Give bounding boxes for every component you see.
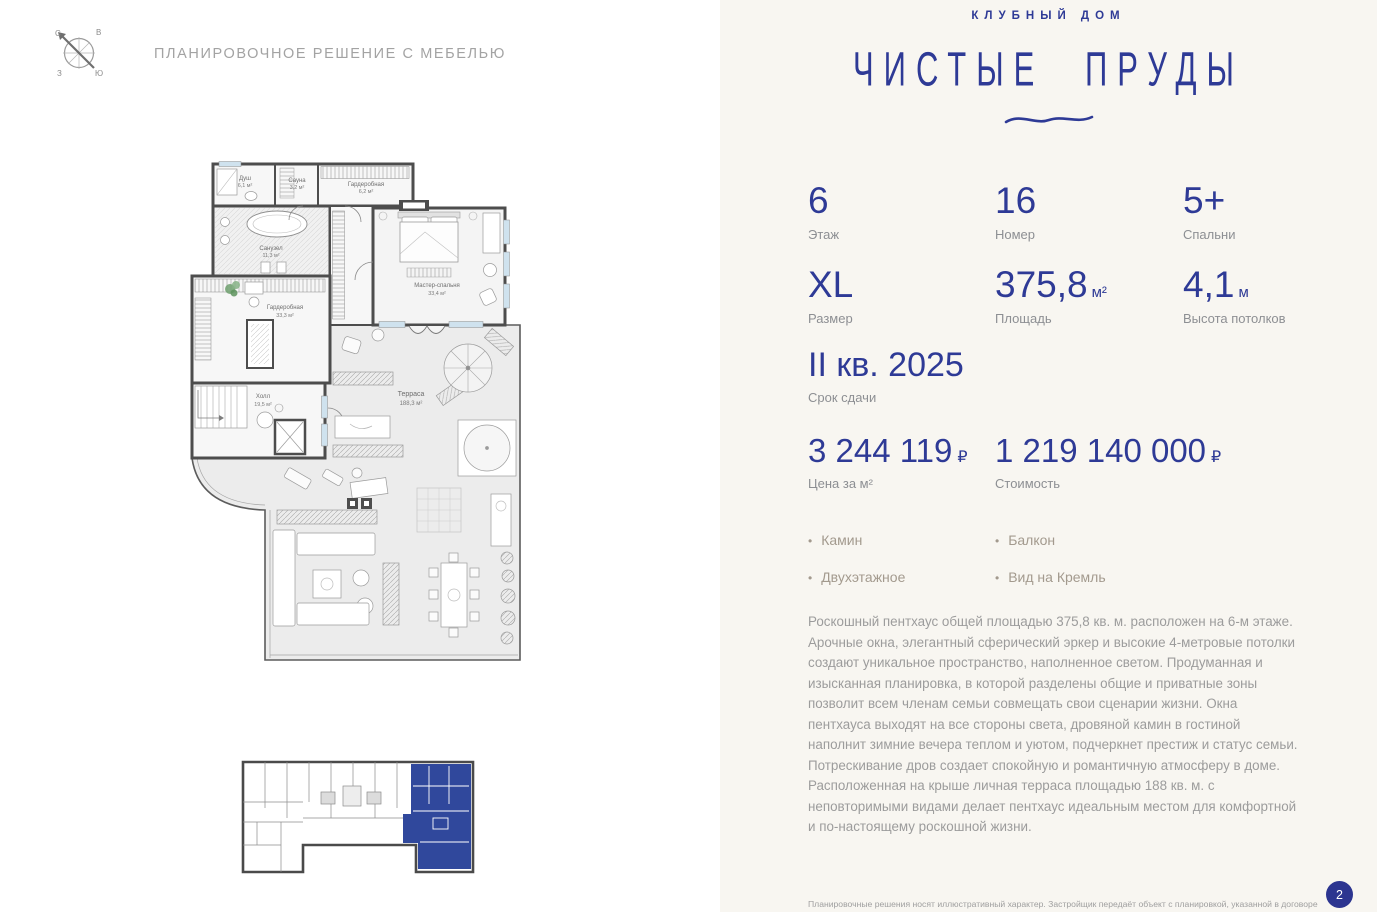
window <box>219 162 241 167</box>
room-label: Терраса <box>398 391 425 398</box>
stat-bedrooms: 5+ Спальни <box>1183 182 1373 242</box>
brochure-page: С В З Ю ПЛАНИРОВОЧНОЕ РЕШЕНИЕ С МЕБЕЛЬЮ <box>0 0 1377 912</box>
price-label: Стоимость <box>995 476 1221 491</box>
stat-value: 5+ <box>1183 180 1225 221</box>
stat-label: Спальни <box>1183 227 1373 242</box>
page-title: ПЛАНИРОВОЧНОЕ РЕШЕНИЕ С МЕБЕЛЬЮ <box>154 46 506 62</box>
ruble-sign: ₽ <box>957 449 967 466</box>
room-label: Мастер-спальня <box>414 283 460 289</box>
window <box>504 284 510 308</box>
unit-highlight <box>403 764 471 869</box>
window <box>504 220 510 244</box>
stat-number: 16 Номер <box>995 182 1185 242</box>
stat-value: 4,1 <box>1183 264 1234 305</box>
page-number-badge: 2 <box>1326 881 1353 908</box>
apartment-info-panel: КЛУБНЫЙ ДОМ ЧИСТЫЕ ПРУДЫ 6 Этаж 16 Номер… <box>720 0 1377 912</box>
room-label: Санузел <box>259 246 283 252</box>
window <box>504 252 510 276</box>
window <box>322 424 328 446</box>
stat-label: Номер <box>995 227 1185 242</box>
stat-value: XL <box>808 264 853 305</box>
compass-west: З <box>57 69 62 78</box>
compass-icon: С В З Ю <box>50 24 108 80</box>
window <box>449 322 483 328</box>
room-area: 188,3 м² <box>400 401 423 407</box>
apartment-description: Роскошный пентхаус общей площадью 375,8 … <box>808 612 1302 838</box>
stat-label: Этаж <box>808 227 998 242</box>
room-label: Гардеробная <box>348 182 384 188</box>
room-area: 33,3 м² <box>276 313 294 319</box>
feature-kremlin-view: Вид на Кремль <box>995 569 1106 585</box>
disclaimer-text: Планировочные решения носят иллюстративн… <box>808 899 1328 909</box>
stat-ceiling-height: 4,1м Высота потолков <box>1183 266 1373 326</box>
room-area: 6,2 м² <box>359 189 374 195</box>
floorplan-panel: С В З Ю ПЛАНИРОВОЧНОЕ РЕШЕНИЕ С МЕБЕЛЬЮ <box>0 0 720 912</box>
stat-label: Размер <box>808 311 998 326</box>
stat-deadline: II кв. 2025 Срок сдачи <box>808 348 964 405</box>
room-area: 3,2 м² <box>290 185 305 191</box>
compass-north: С <box>55 29 61 38</box>
room-label: Сауна <box>288 178 306 184</box>
feature-fireplace: Камин <box>808 532 862 548</box>
window <box>322 396 328 418</box>
stat-floor: 6 Этаж <box>808 182 998 242</box>
building-level-plan <box>237 756 479 880</box>
price-value: 1 219 140 000 <box>995 432 1206 469</box>
stat-value: 375,8 <box>995 264 1088 305</box>
room-area: 19,5 м² <box>254 402 272 408</box>
stat-unit: м <box>1238 284 1248 301</box>
stat-label: Площадь <box>995 311 1185 326</box>
floor-plan: Душ 6,1 м² Сауна 3,2 м² Гардеробная 6,2 … <box>185 158 521 685</box>
room-label: Душ <box>239 176 251 182</box>
stat-size: XL Размер <box>808 266 998 326</box>
stat-value: 16 <box>995 180 1036 221</box>
stat-label: Высота потолков <box>1183 311 1373 326</box>
stat-value: 6 <box>808 180 829 221</box>
ruble-sign: ₽ <box>1211 449 1221 466</box>
window <box>379 322 405 328</box>
price-total: 1 219 140 000₽ Стоимость <box>995 434 1221 491</box>
deadline-value: II кв. 2025 <box>808 348 964 382</box>
room-label: Гардеробная <box>267 305 303 311</box>
feature-two-storey: Двухэтажное <box>808 569 905 585</box>
stat-area: 375,8м² Площадь <box>995 266 1185 326</box>
compass-east: В <box>96 28 101 37</box>
price-per-m2: 3 244 119₽ Цена за м² <box>808 434 968 491</box>
price-label: Цена за м² <box>808 476 968 491</box>
room-area: 11,3 м² <box>262 253 279 259</box>
brand-logo: ЧИСТЫЕ ПРУДЫ <box>720 42 1377 98</box>
stat-unit: м² <box>1092 284 1107 301</box>
price-value: 3 244 119 <box>808 432 952 469</box>
room-area: 6,1 м² <box>238 183 253 189</box>
room-area: 33,4 м² <box>428 291 446 297</box>
feature-balcony: Балкон <box>995 532 1055 548</box>
brand-wave-icon <box>1003 112 1095 128</box>
deadline-label: Срок сдачи <box>808 390 964 405</box>
brand-kicker: КЛУБНЫЙ ДОМ <box>720 10 1377 22</box>
room-label: Холл <box>256 394 271 400</box>
compass-south: Ю <box>95 69 103 78</box>
